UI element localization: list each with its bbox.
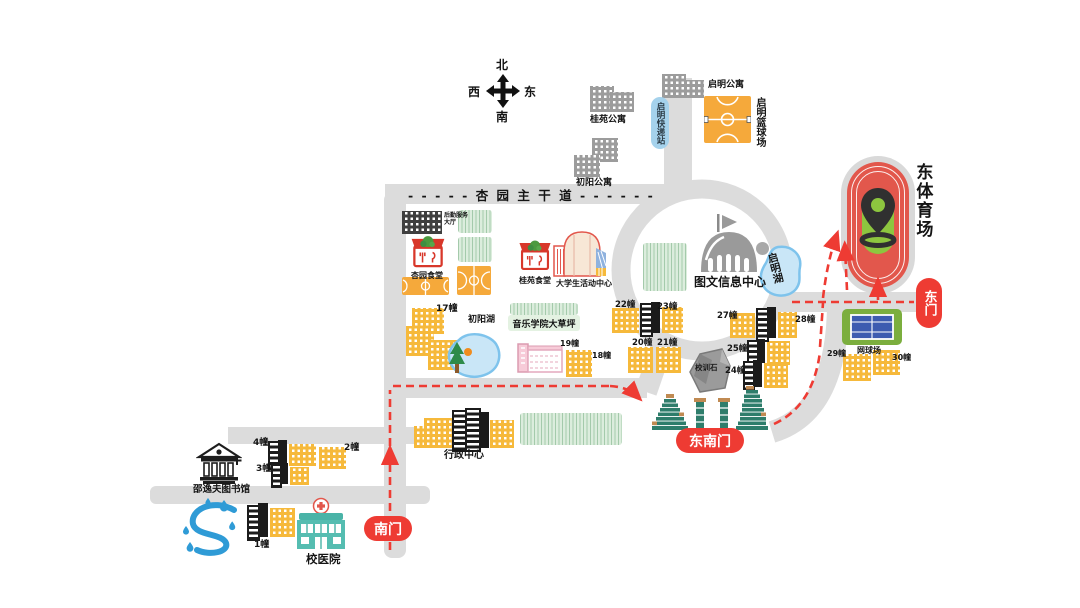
east-gate-pill[interactable]: 东门 xyxy=(916,278,942,328)
shaw-library-icon xyxy=(196,442,242,486)
basketball-court-icon xyxy=(704,96,751,143)
student-activity-center-icon xyxy=(552,226,606,278)
water-stream-icon xyxy=(180,498,250,558)
building-24-label: 24幢 xyxy=(725,366,745,376)
tennis-court-icon xyxy=(842,309,902,345)
qiming-basketball-label: 启明篮球场 xyxy=(754,97,765,135)
building-tower xyxy=(258,503,268,537)
school-hospital-label: 校医院 xyxy=(306,553,341,567)
compass-south-label: 南 xyxy=(496,110,508,124)
motto-stone-label: 校训石 xyxy=(695,363,718,372)
xingyuan-canteen-icon xyxy=(408,234,448,271)
building-21-label: 21幢 xyxy=(657,338,677,348)
pine-tree-icon xyxy=(448,342,466,374)
compass-west-label: 西 xyxy=(468,85,480,99)
building-18-label: 18幢 xyxy=(592,351,611,361)
admin-center-label: 行政中心 xyxy=(444,450,484,462)
xingyuan-canteen-label: 杏园食堂 xyxy=(411,271,443,281)
southeast-gate-pill[interactable]: 东南门 xyxy=(676,428,744,453)
southeast-gate-icon xyxy=(648,382,768,432)
campus-map: 北 西 东 南 桂苑公寓 启明公寓 启明快递站 启明篮球场 初阳公寓 - - -… xyxy=(0,0,1080,608)
shaw-library-label: 邵逸夫图书馆 xyxy=(193,484,250,495)
south-gate-label: 南门 xyxy=(374,519,402,539)
library-info-center-icon xyxy=(698,212,760,274)
building-tower xyxy=(280,463,288,484)
school-hospital-icon xyxy=(295,497,347,553)
qiming-apartment-label: 启明公寓 xyxy=(708,80,744,91)
qiming-express-label: 启明快递站 xyxy=(654,102,666,145)
music-lawn-labelbox: 音乐学院大草坪 xyxy=(508,315,580,331)
building-23-label: 23幢 xyxy=(657,302,677,312)
main-road-label: - - - - - 杏 园 主 干 道 - - - - - - xyxy=(408,188,655,203)
building-29-label: 29幢 xyxy=(827,349,846,359)
building-2-label: 2幢 xyxy=(344,443,359,454)
location-pin-icon[interactable] xyxy=(858,186,898,250)
building-1-label: 1幢 xyxy=(254,540,269,551)
east-stadium-label: 东体育场 xyxy=(912,163,932,255)
east-gate-label: 东门 xyxy=(920,290,939,316)
building-27-label: 27幢 xyxy=(717,311,737,321)
building-22-label: 22幢 xyxy=(615,300,635,310)
chuyang-lake-label: 初阳湖 xyxy=(468,315,495,326)
south-gate-pill[interactable]: 南门 xyxy=(364,516,412,541)
building-25-label: 25幢 xyxy=(727,344,747,354)
building-19-label: 19幢 xyxy=(560,339,579,349)
student-activity-center-label: 大学生活动中心 xyxy=(556,279,612,289)
building-20-label: 20幢 xyxy=(632,338,652,348)
building-4-label: 4幢 xyxy=(253,438,268,449)
logistics-hall-label: 后勤服务大厅 xyxy=(444,212,470,226)
guiyuan-canteen-label: 桂苑食堂 xyxy=(519,276,551,286)
library-info-center-label: 图文信息中心 xyxy=(694,275,766,289)
southeast-gate-label: 东南门 xyxy=(689,431,731,451)
building-tower xyxy=(479,412,489,448)
music-lawn-label: 音乐学院大草坪 xyxy=(512,317,575,330)
building-17-label: 17幢 xyxy=(436,304,458,315)
qiming-express-station: 启明快递站 xyxy=(651,97,669,149)
building-3-label: 3幢 xyxy=(256,464,271,475)
guiyuan-canteen-icon xyxy=(516,237,554,275)
building-30-label: 30幢 xyxy=(892,353,911,363)
building-tower xyxy=(767,307,776,338)
basketball-court-icon xyxy=(457,266,491,295)
compass-north-label: 北 xyxy=(496,58,508,72)
tennis-court-label: 网球场 xyxy=(857,346,881,356)
compass-east-label: 东 xyxy=(524,85,536,99)
compass-icon xyxy=(486,74,520,108)
guiyuan-apartment-label: 桂苑公寓 xyxy=(590,115,626,126)
building-19-icon xyxy=(516,336,564,374)
building-28-label: 28幢 xyxy=(795,315,815,325)
